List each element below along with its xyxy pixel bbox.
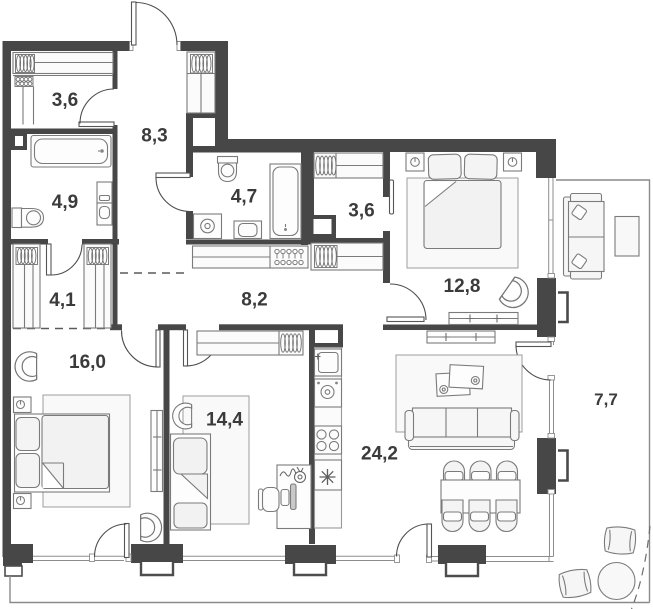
svg-text:4,1: 4,1 xyxy=(49,290,76,311)
svg-text:3,6: 3,6 xyxy=(348,201,374,222)
svg-text:7,7: 7,7 xyxy=(594,390,618,409)
svg-text:12,8: 12,8 xyxy=(444,276,481,297)
svg-text:24,2: 24,2 xyxy=(361,444,398,465)
svg-text:8,2: 8,2 xyxy=(241,290,267,311)
svg-text:14,4: 14,4 xyxy=(206,410,243,431)
svg-text:3,6: 3,6 xyxy=(52,90,78,111)
svg-text:16,0: 16,0 xyxy=(69,352,106,373)
svg-text:4,9: 4,9 xyxy=(52,192,78,213)
svg-text:4,7: 4,7 xyxy=(231,187,257,208)
svg-text:8,3: 8,3 xyxy=(141,126,167,147)
